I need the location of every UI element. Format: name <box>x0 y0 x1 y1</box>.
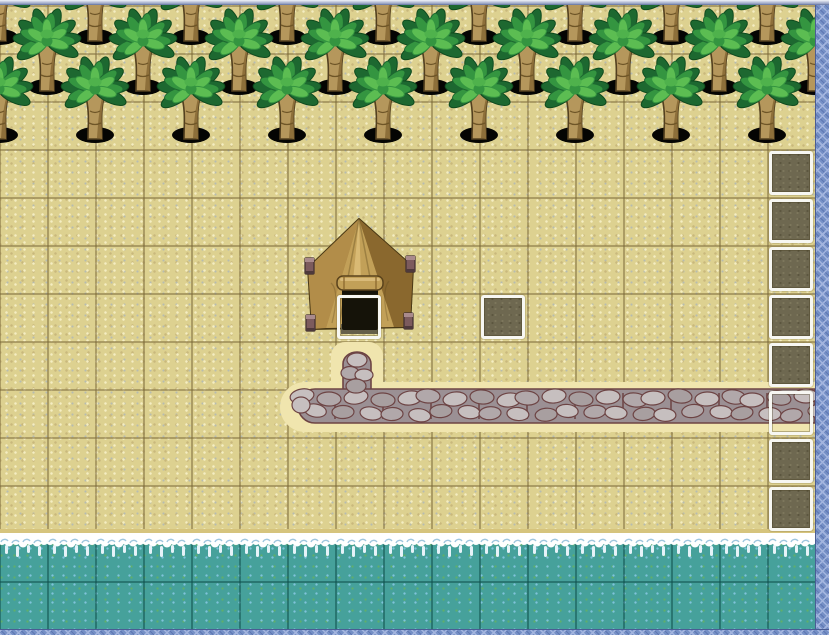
palm-grove <box>0 5 815 143</box>
event-tile-dirt-c16-r3[interactable] <box>769 151 813 195</box>
event-tile-dirt-c16-r10[interactable] <box>769 487 813 531</box>
event-tile-dirt-c16-r4[interactable] <box>769 199 813 243</box>
event-tile-dirt-c10-r6[interactable] <box>481 295 525 339</box>
outside-map-border-right <box>815 5 829 635</box>
event-tile-tent-door-c7-r6[interactable] <box>337 295 381 339</box>
sprite-layer <box>0 5 815 629</box>
event-tile-dirt-c16-r9[interactable] <box>769 439 813 483</box>
event-tile-dirt-c16-r6[interactable] <box>769 295 813 339</box>
event-tile-path-c16-r8[interactable] <box>769 391 813 435</box>
map-canvas[interactable] <box>0 5 815 629</box>
event-tile-dirt-c16-r7[interactable] <box>769 343 813 387</box>
screenshot-root <box>0 0 829 635</box>
event-tile-dirt-c16-r5[interactable] <box>769 247 813 291</box>
outside-map-border-bottom <box>0 629 829 635</box>
shoreline <box>0 529 815 557</box>
cobblestone-path <box>280 342 815 432</box>
